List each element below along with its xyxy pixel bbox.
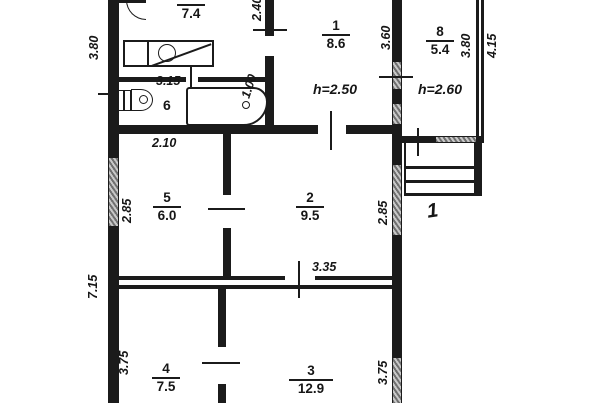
room-7-area: 7.4 <box>161 7 221 21</box>
wall-lower-horizontal-b <box>119 285 397 289</box>
porch-left-edge <box>404 143 406 196</box>
tick-door-room2-room3 <box>298 261 300 298</box>
room-1-number: 1 <box>306 19 366 33</box>
door-opening-room2-room3 <box>285 275 315 281</box>
porch-number: 1 <box>425 199 439 223</box>
room-3-area: 12.9 <box>281 382 341 396</box>
room-3-label: 3 12.9 <box>281 364 341 396</box>
dim-room1-right: 3.60 <box>379 12 393 64</box>
porch-bottom-edge <box>404 193 482 196</box>
porch-right-edge <box>474 143 482 196</box>
dim-left-top: 3.80 <box>87 24 101 72</box>
window-room2-right <box>393 165 401 235</box>
dim-bath-width: 3.15 <box>156 74 180 88</box>
room-5-number: 5 <box>137 191 197 205</box>
room-2-area: 9.5 <box>280 209 340 223</box>
door-opening-room1-room2 <box>318 124 346 135</box>
toilet-bowl-hole <box>139 95 148 104</box>
room-4-number: 4 <box>136 362 196 376</box>
tick-door-porch <box>417 128 419 156</box>
dim-room4-left: 3.75 <box>117 340 131 386</box>
porch-step-line-2 <box>404 180 476 183</box>
wall-lower-horizontal-a <box>119 276 397 280</box>
dim-room3-right: 3.75 <box>376 350 390 396</box>
tick-door-room5-room2 <box>208 208 245 210</box>
dim-room5-top: 2.10 <box>152 136 176 150</box>
ceiling-height-main: h=2.50 <box>313 81 357 97</box>
wall-room4-room3 <box>218 289 226 403</box>
room-5-area: 6.0 <box>137 209 197 223</box>
bathtub <box>186 87 268 126</box>
window-left-wall <box>109 158 118 226</box>
room-6-number: 6 <box>163 97 171 113</box>
wall-room8-right-inner <box>481 0 484 143</box>
ceiling-height-annex: h=2.60 <box>418 81 462 97</box>
dim-left-bottom: 7.15 <box>86 262 100 312</box>
dim-room2-bottom: 3.35 <box>312 260 336 274</box>
dim-room2-right: 2.85 <box>376 190 390 236</box>
door-opening-bathroom <box>186 76 198 83</box>
floor-plan: 7 7.4 1 8.6 8 5.4 6 5 6.0 2 9.5 4 7.5 3 … <box>0 0 605 403</box>
dim-room5-left: 2.85 <box>120 187 134 235</box>
room-7-number: 7 <box>161 0 221 3</box>
room-1-label: 1 8.6 <box>306 19 366 51</box>
room-4-area: 7.5 <box>136 380 196 394</box>
entry-door-arc <box>126 0 146 20</box>
room-2-label: 2 9.5 <box>280 191 340 223</box>
window-room8-bottom <box>436 137 476 142</box>
door-opening-room7-room1 <box>265 36 274 56</box>
door-opening-room5-room2 <box>222 195 232 228</box>
room-4-label: 4 7.5 <box>136 362 196 394</box>
tick-door-room4-room3 <box>202 362 240 364</box>
room-2-number: 2 <box>280 191 340 205</box>
window-room3-right <box>393 358 401 403</box>
kitchen-counter-divider <box>147 41 149 66</box>
bathtub-drain <box>242 101 250 109</box>
toilet-tank-icon <box>118 90 131 111</box>
room-5-label: 5 6.0 <box>137 191 197 223</box>
tick-room1-dimension <box>379 76 413 78</box>
door-opening-room4-room3 <box>217 347 227 384</box>
dim-room8-outer: 4.15 <box>485 25 499 67</box>
dim-room8-inner: 3.80 <box>459 26 473 66</box>
porch-step-line-1 <box>404 166 476 169</box>
tick-door-room1-room2 <box>330 111 332 150</box>
toilet-tank-line <box>123 91 125 110</box>
room-3-number: 3 <box>281 364 341 378</box>
room-1-area: 8.6 <box>306 37 366 51</box>
dim-top-mid: 2.40 <box>250 0 264 32</box>
wall-room8-right-outer <box>476 0 479 143</box>
wall-room7-room1 <box>265 0 274 133</box>
room-7-label: 7 7.4 <box>161 0 221 21</box>
window-room1-room8-lower <box>393 104 401 124</box>
wall-mid-horizontal <box>108 125 402 134</box>
